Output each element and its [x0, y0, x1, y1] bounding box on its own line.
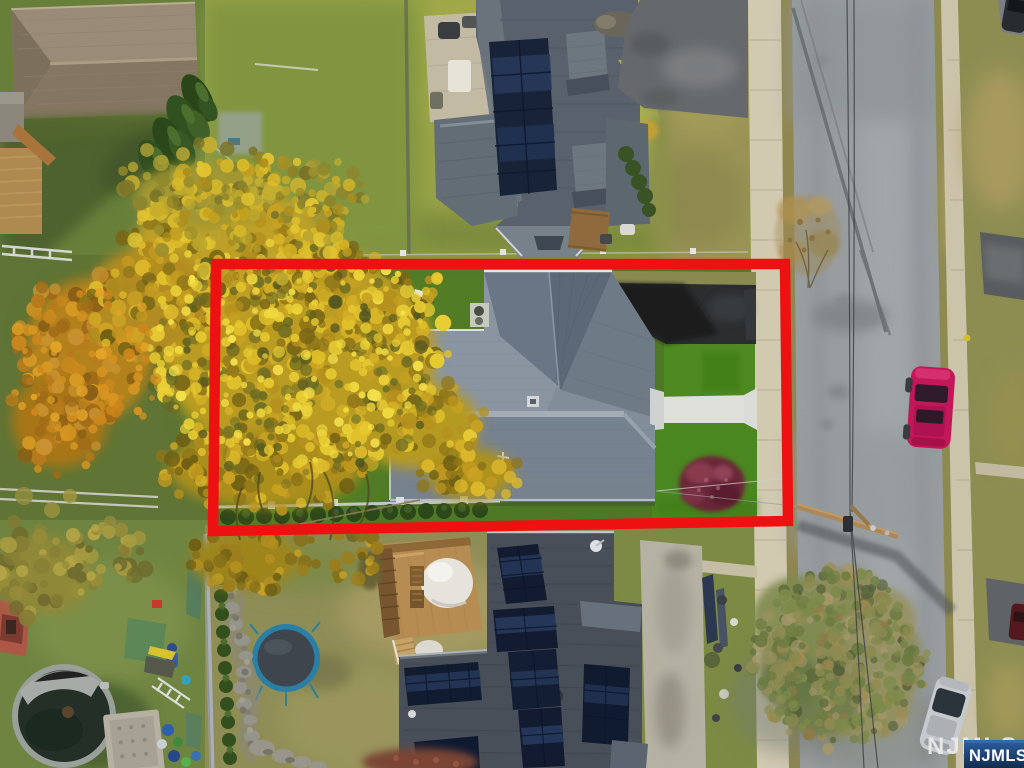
- svg-text:NJMLS: NJMLS: [969, 747, 1024, 765]
